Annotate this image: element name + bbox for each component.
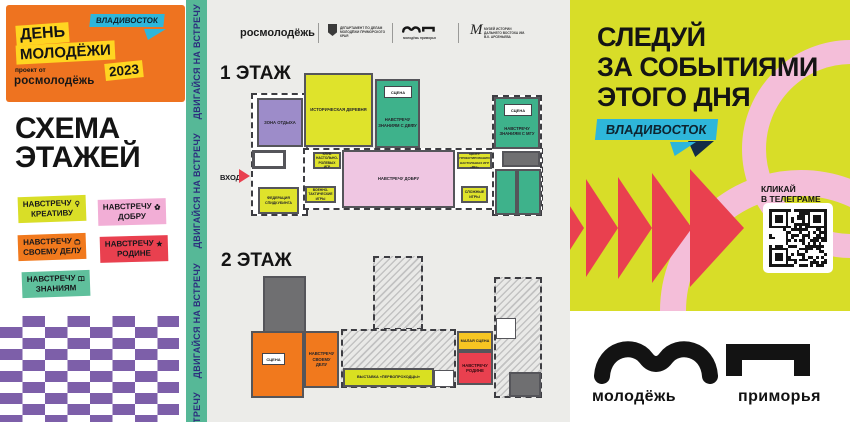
tag-svoemu-delu: НАВСТРЕЧУ СВОЕМУ ДЕЛУ xyxy=(18,233,87,261)
side-strip: ДВИГАЙСЯ НА ВСТРЕЧУДВИГАЙСЯ НА ВСТРЕЧУ Д… xyxy=(186,0,207,422)
arrow-triangle xyxy=(586,179,618,277)
room-slozhnye-igry: СЛОЖНЫЕ ИГРЫ xyxy=(461,186,488,203)
floor1-teal-room-a xyxy=(495,169,517,215)
arrow-triangle xyxy=(618,177,652,279)
floor2-right-small-room xyxy=(496,318,516,339)
title-molodezhi: МОЛОДЁЖИ xyxy=(16,40,116,64)
room-malaya-scena: МАЛАЯ СЦЕНА xyxy=(457,331,493,351)
project-from-label: проект от xyxy=(15,67,46,74)
floor1-label: 1 ЭТАЖ xyxy=(220,63,291,85)
city-badge: ВЛАДИВОСТОК xyxy=(595,119,718,140)
tag-dobru: НАВСТРЕЧУ ДОБРУ xyxy=(98,198,166,226)
badge-tail xyxy=(144,29,166,40)
qr-code[interactable] xyxy=(763,203,833,273)
page-title: СХЕМАЭТАЖЕЙ xyxy=(15,114,140,172)
room-navstrechu-znaniyam-mgu: СЦЕНА НАВСТРЕЧУ ЗНАНИЯМ С МГУ xyxy=(494,97,540,149)
floor1-stairwell xyxy=(252,150,286,169)
room-navstrechu-rodine: НАВСТРЕЧУ РОДИНЕ xyxy=(457,351,493,385)
tag-rodine: НАВСТРЕЧУ РОДИНЕ xyxy=(100,235,168,263)
logo-divider xyxy=(458,23,459,43)
left-header-block: ВЛАДИВОСТОК ДЕНЬ МОЛОДЁЖИ 2023 проект от… xyxy=(6,5,185,102)
room-voenno-takticheskie-igry: ВОЕННО-ТАКТИЧЕСКИЕ ИГРЫ xyxy=(305,186,336,203)
flower-icon xyxy=(154,203,161,210)
checker-pattern xyxy=(0,316,179,422)
rosmolodezh-partner-logo: росмолодёжь xyxy=(240,27,315,39)
city-badge: ВЛАДИВОСТОК xyxy=(89,14,164,27)
floor1-stairs xyxy=(502,151,540,167)
rosmolodezh-logo: росмолодёжь xyxy=(14,75,95,87)
logo-divider xyxy=(318,23,319,43)
floor2-white-box xyxy=(434,370,454,387)
tag-kreativu: НАВСТРЕЧУ КРЕАТИВУ xyxy=(18,195,87,223)
floor2-dark-block xyxy=(263,276,306,333)
entrance-arrow-icon xyxy=(239,169,250,183)
department-logo-text: ДЕПАРТАМЕНТ ПО ДЕЛАМ МОЛОДЁЖИ ПРИМОРСКОГ… xyxy=(340,26,386,38)
room-federaciya-spidkubinga: ФЕДЕРАЦИЯ СПИДКУБИНГА xyxy=(258,187,299,214)
right-heading: СЛЕДУЙЗА СОБЫТИЯМИЭТОГО ДНЯ xyxy=(597,22,818,112)
title-year: 2023 xyxy=(104,60,144,81)
tag-znaniyam: НАВСТРЕЧУ ЗНАНИЯМ xyxy=(22,270,91,298)
museum-logo-text: МУЗЕЙ ИСТОРИИ ДАЛЬНЕГО ВОСТОКА ИМ. В.К. … xyxy=(484,27,528,39)
entrance-label: ВХОД xyxy=(220,173,241,182)
room-navstrechu-znaniyam-dvfu: СЦЕНА НАВСТРЕЧУ ЗНАНИЯМ С ДВФУ xyxy=(375,79,420,148)
logo-divider xyxy=(392,23,393,43)
lightbulb-icon xyxy=(73,199,80,206)
arrow-triangle xyxy=(652,173,692,283)
mp-logo-caption: молодёжь приморья xyxy=(403,36,447,40)
floor1-teal-room-b xyxy=(517,169,541,215)
mp-word-molodezh: молодёжь xyxy=(592,388,676,406)
mp-logo xyxy=(594,334,818,384)
briefcase-icon xyxy=(74,237,81,244)
room-istoricheskaya-derevnya: ИСТОРИЧЕСКАЯ ДЕРЕВНЯ xyxy=(304,73,373,147)
room-centr-proektirovaniya: ЦЕНТР ПРОЕКТИРОВАНИЯ НАСТОЛЬНЫХ ИГР «МЫ» xyxy=(457,152,492,169)
arrow-triangle xyxy=(690,169,744,287)
floor2-top-protrusion xyxy=(373,256,423,330)
floor2-right-dark-room xyxy=(509,372,541,397)
poster: ВЛАДИВОСТОК ДЕНЬ МОЛОДЁЖИ 2023 проект от… xyxy=(0,0,850,422)
right-panel: СЛЕДУЙЗА СОБЫТИЯМИЭТОГО ДНЯ ВЛАДИВОСТОК … xyxy=(570,0,850,422)
room-zona-otdyha: ЗОНА ОТДЫХА xyxy=(257,98,303,147)
floor2-orange-hall: СЦЕНА xyxy=(251,331,304,398)
mp-logo-small xyxy=(402,24,436,34)
museum-m-logo: M xyxy=(470,22,483,39)
arrow-triangle xyxy=(570,181,584,275)
room-klub-nastolno-rolevyh-igr: КЛУБ НАСТОЛЬНО-РОЛЕВЫХ ИГР xyxy=(313,152,341,169)
mp-word-primorya: приморья xyxy=(738,388,821,406)
scene-box: СЦЕНА xyxy=(384,86,412,98)
room-navstrechu-dobru: НАВСТРЕЧУ ДОБРУ xyxy=(342,150,455,208)
scene-box: СЦЕНА xyxy=(262,353,285,365)
room-vystavka: ВЫСТАВКА «ПЕРВОПРОХОДЦЫ» xyxy=(343,368,434,387)
star-icon xyxy=(156,240,163,247)
floor2-label: 2 ЭТАЖ xyxy=(221,250,292,272)
book-icon xyxy=(77,274,84,281)
room-navstrechu-svoemu-delu: НАВСТРЕЧУ СВОЕМУ ДЕЛУ xyxy=(304,331,339,388)
telegram-cta: КЛИКАЙВ ТЕЛЕГРАМЕ xyxy=(761,184,821,204)
